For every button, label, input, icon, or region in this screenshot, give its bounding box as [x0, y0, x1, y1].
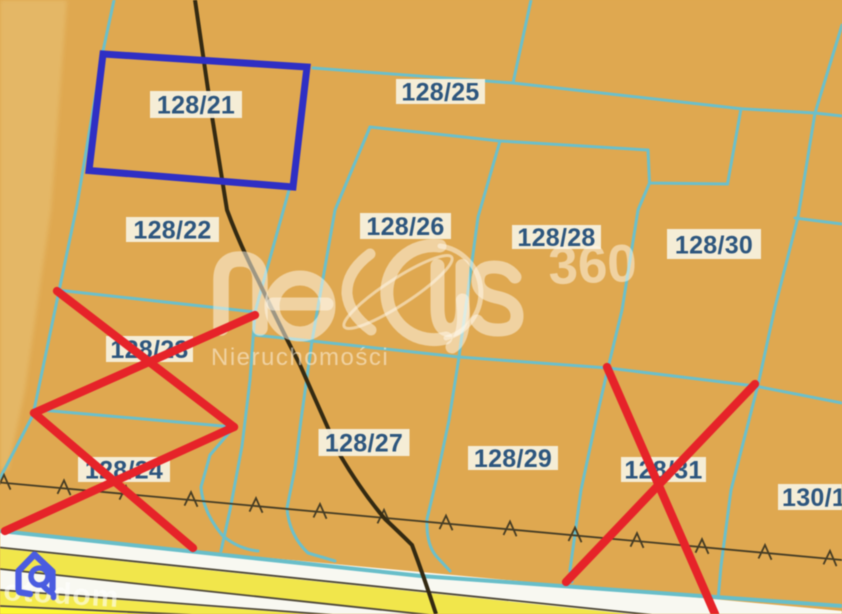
- svg-text:Nieruchomości: Nieruchomości: [211, 344, 389, 371]
- svg-text:128/27: 128/27: [325, 430, 403, 458]
- svg-text:128/29: 128/29: [474, 445, 552, 473]
- svg-text:130/1: 130/1: [782, 484, 842, 512]
- svg-text:128/30: 128/30: [675, 232, 753, 260]
- svg-text:128/25: 128/25: [401, 79, 479, 107]
- svg-text:128/21: 128/21: [157, 92, 235, 120]
- svg-text:128/26: 128/26: [366, 213, 444, 241]
- svg-text:128/22: 128/22: [133, 217, 211, 245]
- svg-text:360: 360: [547, 234, 637, 296]
